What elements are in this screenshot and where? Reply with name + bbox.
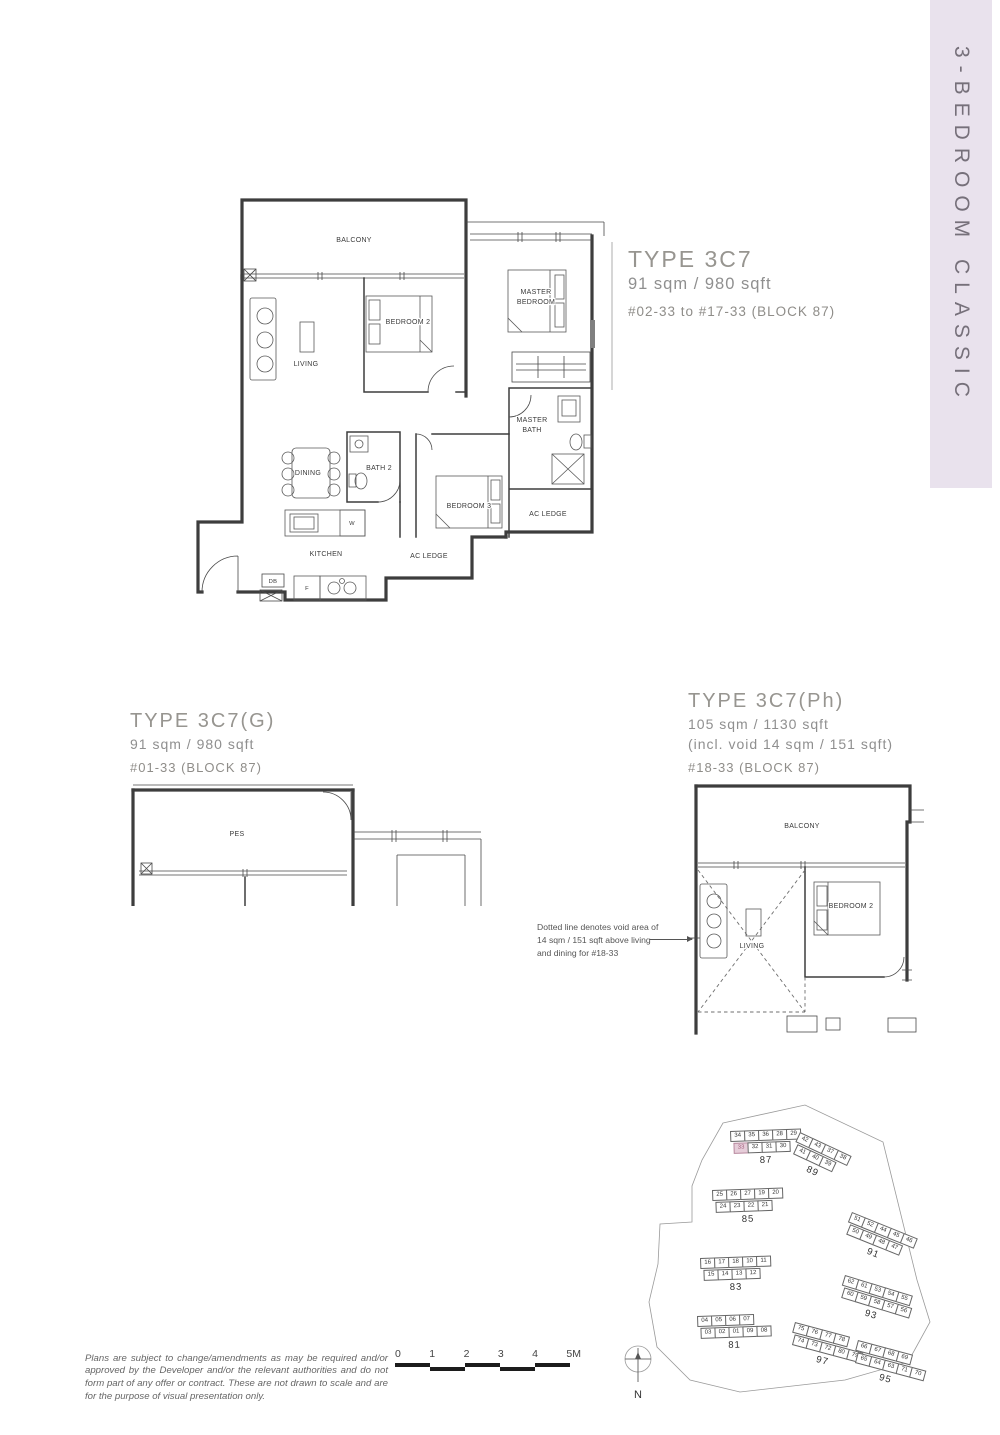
site-unit-30: 30 [775, 1141, 790, 1153]
room-label-master-bath-1: MASTER [517, 417, 548, 424]
site-unit-21: 21 [757, 1200, 772, 1212]
site-unit-12: 12 [745, 1268, 760, 1280]
floorplan-page: 3-BEDROOM CLASSIC TYPE 3C7 91 sqm / 980 … [0, 0, 1000, 1435]
unit-main-area: 91 sqm / 980 sqft [628, 274, 835, 295]
scale-ticks: 012345M [395, 1348, 581, 1360]
void-note-line3: and dining for #18-33 [537, 947, 659, 960]
unit-main-header: TYPE 3C7 91 sqm / 980 sqft #02-33 to #17… [628, 246, 835, 319]
site-unit-11: 11 [756, 1256, 771, 1268]
void-note: Dotted line denotes void area of 14 sqm … [537, 921, 659, 960]
room-label-fridge: F [305, 586, 309, 592]
floorplan-type-3c7: BALCONY LIVING BEDROOM 2 MASTER BEDROOM … [188, 190, 618, 615]
room-label-kitchen: KITCHEN [310, 551, 343, 558]
room-label-living: LIVING [294, 361, 319, 368]
scale-tick-0: 0 [395, 1348, 401, 1360]
room-label-washer: W [349, 521, 355, 527]
category-label: 3-BEDROOM CLASSIC [949, 46, 973, 405]
site-unit-08: 08 [756, 1325, 771, 1337]
site-block-81: 04050607030201090881 [697, 1313, 771, 1352]
room-label-master-bedroom-1: MASTER [521, 289, 552, 296]
room-label-ph-bedroom2: BEDROOM 2 [829, 903, 874, 910]
room-label-bedroom3: BEDROOM 3 [447, 503, 492, 510]
north-compass: N [618, 1344, 658, 1401]
unit-g-header: TYPE 3C7(G) 91 sqm / 980 sqft #01-33 (BL… [130, 710, 275, 775]
unit-g-area: 91 sqm / 980 sqft [130, 736, 275, 753]
scale-tick-4: 4 [532, 1348, 538, 1360]
room-label-db: DB [269, 579, 278, 585]
room-label-master-bedroom-2: BEDROOM [517, 299, 555, 306]
unit-g-title: TYPE 3C7(G) [130, 710, 275, 733]
scale-tick-1: 1 [429, 1348, 435, 1360]
disclaimer-text: Plans are subject to change/amendments a… [85, 1353, 388, 1404]
room-label-dining: DINING [295, 470, 321, 477]
room-label-bath2: BATH 2 [366, 465, 392, 472]
category-banner: 3-BEDROOM CLASSIC [930, 0, 992, 488]
scale-tick-2: 2 [464, 1348, 470, 1360]
scale-bar-segments [395, 1363, 581, 1371]
void-note-arrow [650, 939, 692, 940]
floorplan-type-3c7ph: BALCONY LIVING BEDROOM 2 [688, 780, 978, 1035]
site-block-85: 25262719202423222185 [712, 1188, 783, 1226]
site-unit-20: 20 [768, 1188, 783, 1200]
room-label-ph-balcony: BALCONY [784, 823, 820, 830]
site-block-83: 16171810111514131283 [700, 1256, 771, 1294]
room-label-bedroom2: BEDROOM 2 [386, 319, 431, 326]
scale-tick-5M: 5M [566, 1348, 581, 1360]
room-label-ph-living: LIVING [740, 943, 765, 950]
unit-ph-header: TYPE 3C7(Ph) 105 sqm / 1130 sqft (incl. … [688, 690, 893, 775]
scale-bar: 012345M [395, 1348, 581, 1371]
room-label-ac-ledge-mid: AC LEDGE [410, 553, 448, 560]
room-label-balcony: BALCONY [336, 237, 372, 244]
north-label: N [618, 1389, 658, 1401]
room-label-ac-ledge-right: AC LEDGE [529, 511, 567, 518]
unit-ph-levels: #18-33 (BLOCK 87) [688, 760, 893, 775]
scale-tick-3: 3 [498, 1348, 504, 1360]
unit-main-levels: #02-33 to #17-33 (BLOCK 87) [628, 304, 835, 319]
unit-ph-area: 105 sqm / 1130 sqft [688, 716, 893, 733]
room-label-pes: PES [230, 831, 245, 838]
unit-main-title: TYPE 3C7 [628, 246, 835, 272]
unit-ph-title: TYPE 3C7(Ph) [688, 690, 893, 713]
floorplan-type-3c7g: PES [125, 778, 485, 906]
void-note-line1: Dotted line denotes void area of [537, 921, 659, 934]
unit-g-levels: #01-33 (BLOCK 87) [130, 760, 275, 775]
site-unit-07: 07 [739, 1314, 754, 1326]
unit-ph-area-note: (incl. void 14 sqm / 151 sqft) [688, 736, 893, 753]
void-note-line2: 14 sqm / 151 sqft above living [537, 934, 659, 947]
north-arrow-icon [618, 1344, 658, 1388]
room-label-master-bath-2: BATH [522, 427, 541, 434]
